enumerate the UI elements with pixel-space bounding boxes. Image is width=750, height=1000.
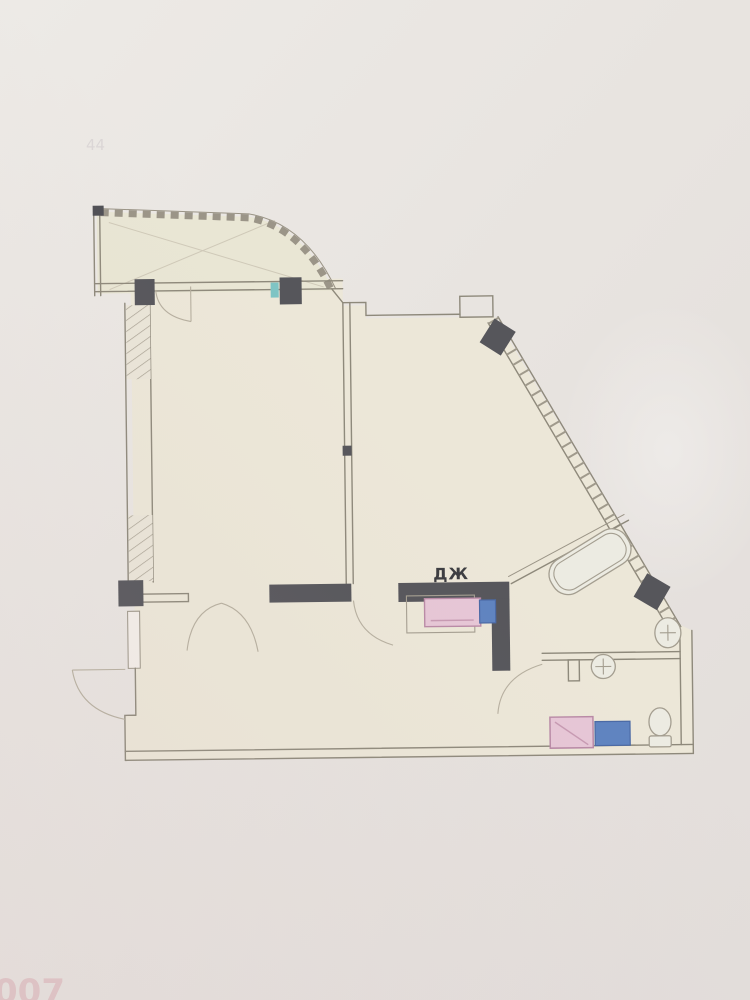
floorplan-svg: ДЖ 44 007 xyxy=(0,0,750,1000)
floorplan-photo: ДЖ 44 007 xyxy=(0,0,750,1000)
photo-vignette xyxy=(0,0,750,1000)
